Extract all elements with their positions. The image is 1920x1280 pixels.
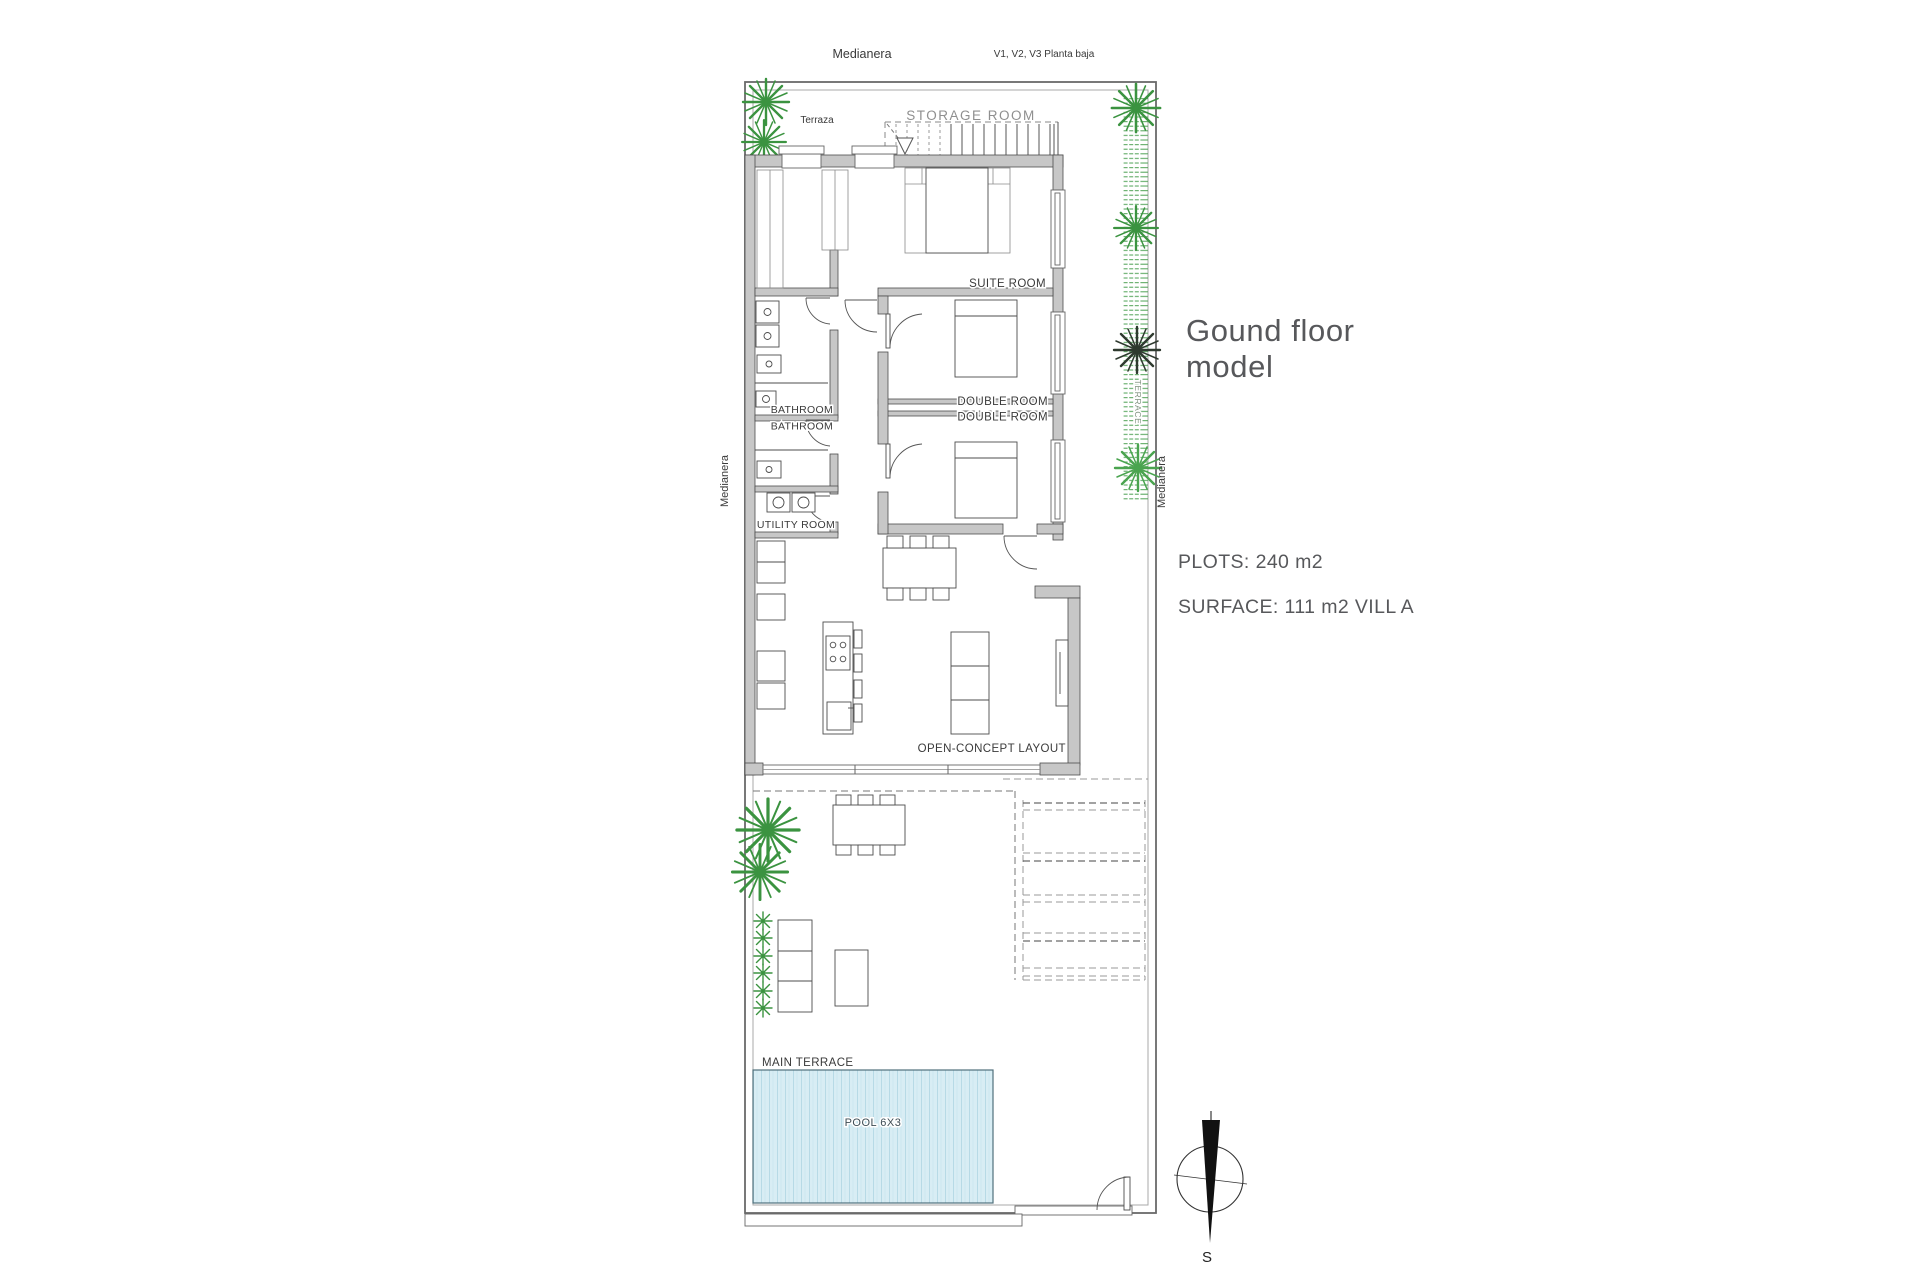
main-terrace-label: MAIN TERRACE — [762, 1057, 854, 1069]
hedge-strip — [1123, 96, 1148, 502]
storage-room-label: STORAGE ROOM — [906, 108, 1036, 123]
info-panel: Gound floor model PLOTS: 240 m2 SURFACE:… — [1178, 313, 1414, 618]
utility-room-label: UTILITY ROOM — [757, 519, 835, 531]
floor-plan-canvas: TERRACE Terraza STORAGE ROOM — [0, 0, 1920, 1280]
palm-tree-icon — [743, 79, 789, 125]
compass-south-label: S — [1202, 1249, 1212, 1266]
compass-icon: S — [1174, 1111, 1247, 1266]
pool-area: POOL 6X3 MAIN TERRACE — [745, 1057, 1132, 1226]
window — [1051, 190, 1065, 522]
medianera-left-label: Medianera — [719, 454, 731, 507]
palm-tree-icon — [732, 844, 787, 899]
pool-label: POOL 6X3 — [845, 1117, 902, 1129]
room-labels: SUITE ROOM DOUBLE ROOM DOUBLE ROOM BATHR… — [757, 278, 1066, 755]
bush-icon — [754, 929, 772, 947]
surface-value: SURFACE: 111 m2 VILL A — [1178, 596, 1414, 618]
suite-room-furniture — [757, 168, 1010, 288]
double-room-2-label: DOUBLE ROOM — [957, 412, 1048, 424]
front-door — [1004, 536, 1037, 569]
bush-icon — [754, 947, 772, 965]
kitchen-living-furniture — [757, 536, 1068, 734]
bathroom-2-label: BATHROOM — [771, 421, 833, 433]
palm-tree-dark-icon — [1114, 327, 1160, 373]
stairs-storage-room: STORAGE ROOM — [885, 108, 1058, 157]
open-concept-label: OPEN-CONCEPT LAYOUT — [918, 743, 1066, 755]
bathroom-1-label: BATHROOM — [771, 404, 833, 416]
plots-value: PLOTS: 240 m2 — [1178, 551, 1323, 573]
pool — [753, 1070, 993, 1203]
bush-icon — [754, 999, 772, 1017]
side-terrace-label: TERRACE — [1133, 380, 1143, 425]
suite-room-label: SUITE ROOM — [969, 278, 1046, 290]
compass-needle — [1202, 1120, 1220, 1243]
variant-label: V1, V2, V3 Planta baja — [994, 49, 1095, 60]
palm-tree-icon — [1115, 445, 1161, 491]
sliding-door — [763, 765, 1040, 774]
plan-title-line1: Gound floor — [1186, 313, 1355, 348]
garden-furniture — [732, 795, 905, 1017]
bush-icon — [754, 982, 772, 1000]
walkway-step — [1015, 1206, 1132, 1215]
bush-icon — [754, 912, 772, 930]
palm-tree-icon — [1112, 84, 1160, 132]
plot-inner-line — [753, 90, 1148, 1205]
bush-icon — [754, 964, 772, 982]
double-room-furniture — [955, 300, 1017, 518]
stair-direction-arrow-icon — [897, 138, 913, 154]
side-terrace-hedge: TERRACE — [1112, 84, 1161, 502]
plan-title-line2: model — [1186, 349, 1273, 384]
medianera-top-label: Medianera — [832, 47, 891, 61]
building-walls — [745, 146, 1080, 775]
palm-tree-icon — [1114, 206, 1158, 250]
medianera-right-label: Medianera — [1156, 455, 1168, 508]
terraza-label: Terraza — [800, 115, 834, 126]
walkway-step — [745, 1214, 1022, 1226]
double-room-1-label: DOUBLE ROOM — [957, 396, 1048, 408]
